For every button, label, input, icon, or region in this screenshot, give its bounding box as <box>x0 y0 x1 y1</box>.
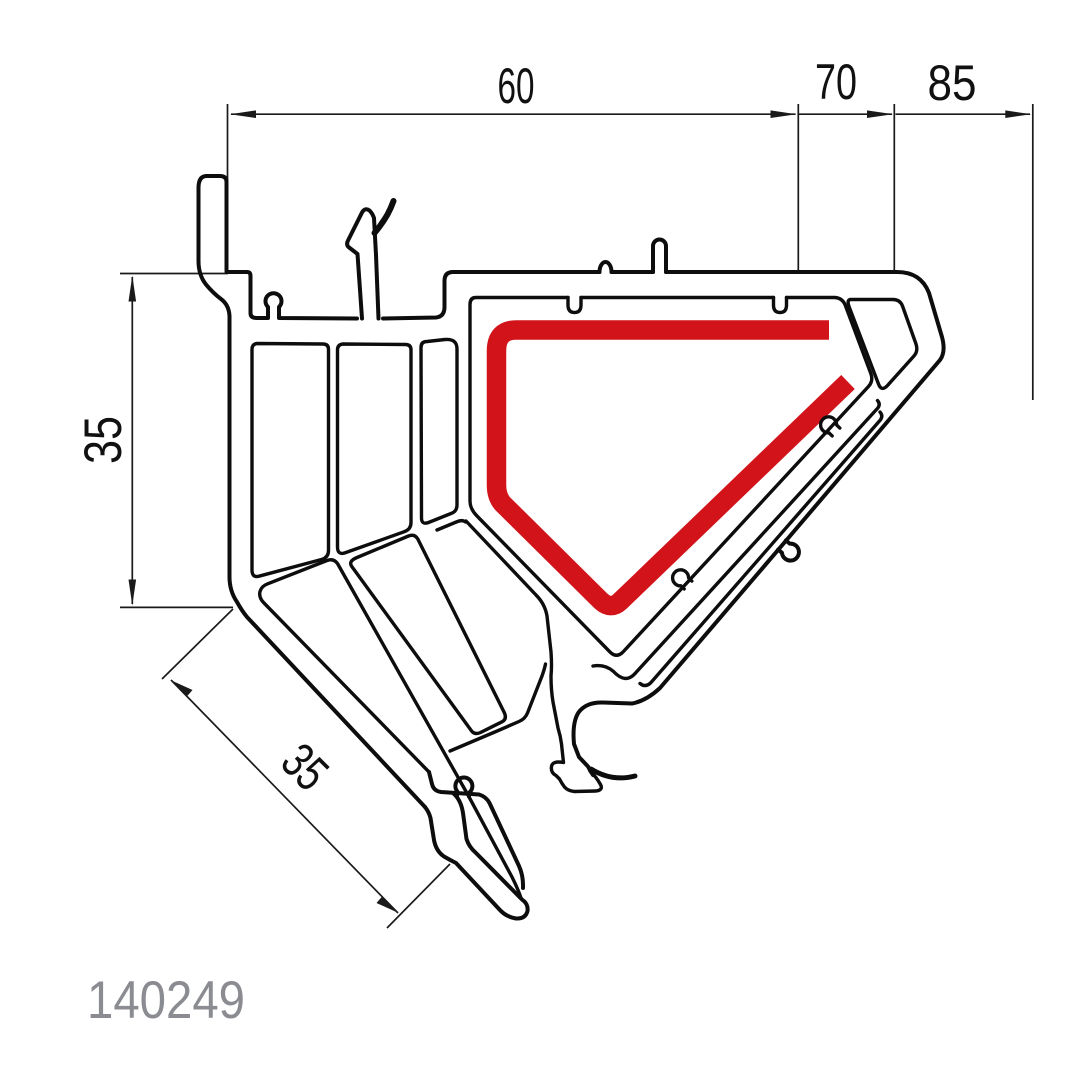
svg-text:35: 35 <box>271 733 340 802</box>
svg-text:70: 70 <box>815 54 857 110</box>
svg-text:35: 35 <box>74 416 133 464</box>
svg-text:60: 60 <box>498 58 535 114</box>
svg-text:140249: 140249 <box>87 971 245 1030</box>
svg-text:85: 85 <box>928 55 977 111</box>
